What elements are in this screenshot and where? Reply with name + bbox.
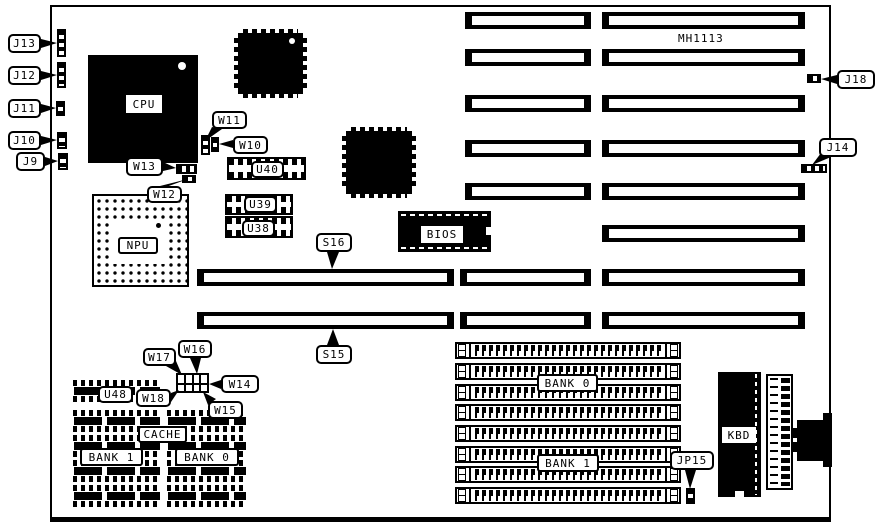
- callout-w14: W14: [221, 375, 259, 393]
- callout-u40: U40: [251, 161, 284, 178]
- callout-w18: W18: [136, 389, 171, 407]
- callout-w12: W12: [147, 186, 182, 203]
- callout-s15: S15: [316, 345, 352, 364]
- callout-j18: J18: [837, 70, 875, 89]
- callout-w11: W11: [212, 111, 247, 129]
- npu-label: NPU: [118, 237, 158, 254]
- cache-label: CACHE: [138, 426, 187, 443]
- callout-j9: J9: [16, 152, 45, 171]
- motherboard-diagram: MH1113 CPU NPU BIOS KBD: [0, 0, 878, 527]
- board-model-text: MH1113: [678, 32, 724, 45]
- simm-bank0-label: BANK 0: [537, 374, 598, 392]
- callout-w10: W10: [233, 136, 268, 154]
- callout-w15: W15: [208, 401, 243, 419]
- callout-w13: W13: [126, 157, 163, 176]
- callout-w17: W17: [143, 348, 176, 366]
- callout-u48: U48: [98, 386, 133, 403]
- cache-bank1-label: BANK 1: [80, 448, 143, 466]
- callout-j11: J11: [8, 99, 41, 118]
- kbd-label: KBD: [722, 427, 756, 443]
- cpu-label: CPU: [126, 95, 162, 113]
- callout-u38: U38: [242, 220, 275, 237]
- simm-bank1-label: BANK 1: [537, 454, 599, 472]
- callout-s16: S16: [316, 233, 352, 252]
- callout-j13: J13: [8, 34, 41, 53]
- cache-bank0-label: BANK 0: [175, 448, 239, 466]
- callout-j12: J12: [8, 66, 41, 85]
- callout-w16: W16: [178, 340, 212, 358]
- callout-jp15: JP15: [670, 451, 714, 470]
- callout-j10: J10: [8, 131, 41, 150]
- callout-j14: J14: [819, 138, 857, 157]
- callout-u39: U39: [244, 196, 277, 213]
- bios-label: BIOS: [421, 226, 463, 243]
